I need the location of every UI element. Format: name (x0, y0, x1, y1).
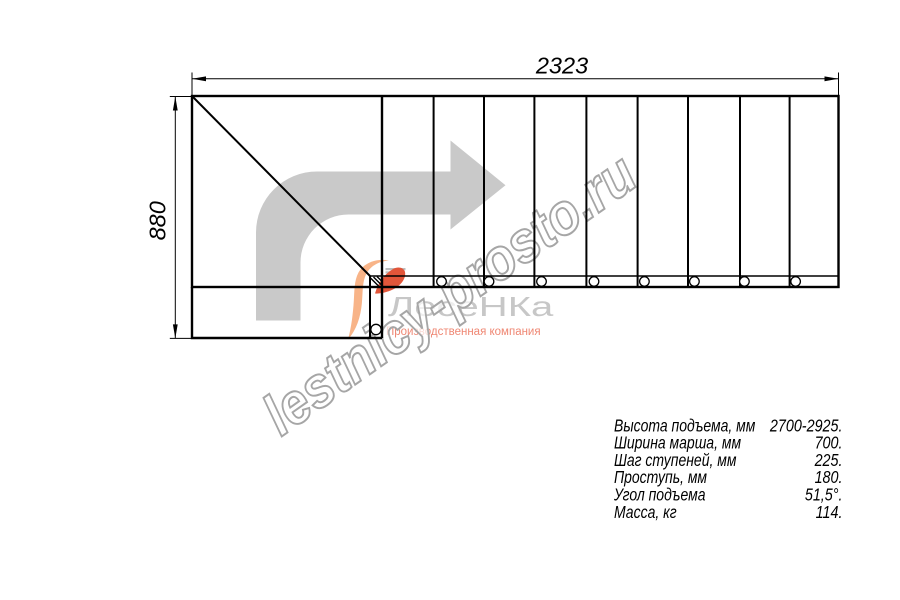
svg-text:51,5°.: 51,5°. (805, 486, 843, 505)
svg-text:225.: 225. (814, 452, 843, 471)
svg-text:880: 880 (145, 201, 171, 240)
svg-text:Высота подъема, мм: Высота подъема, мм (614, 417, 755, 436)
svg-text:Угол подъема: Угол подъема (613, 486, 706, 505)
svg-text:2323: 2323 (535, 53, 588, 79)
svg-text:114.: 114. (816, 504, 843, 523)
svg-text:Ширина марша, мм: Ширина марша, мм (614, 434, 741, 453)
svg-text:700.: 700. (815, 434, 843, 453)
svg-text:180.: 180. (815, 469, 843, 488)
svg-text:2700-2925.: 2700-2925. (769, 417, 843, 436)
svg-text:Масса, кг: Масса, кг (614, 503, 677, 522)
svg-text:Шаг ступеней, мм: Шаг ступеней, мм (614, 452, 737, 471)
svg-text:Проступь, мм: Проступь, мм (614, 469, 707, 488)
